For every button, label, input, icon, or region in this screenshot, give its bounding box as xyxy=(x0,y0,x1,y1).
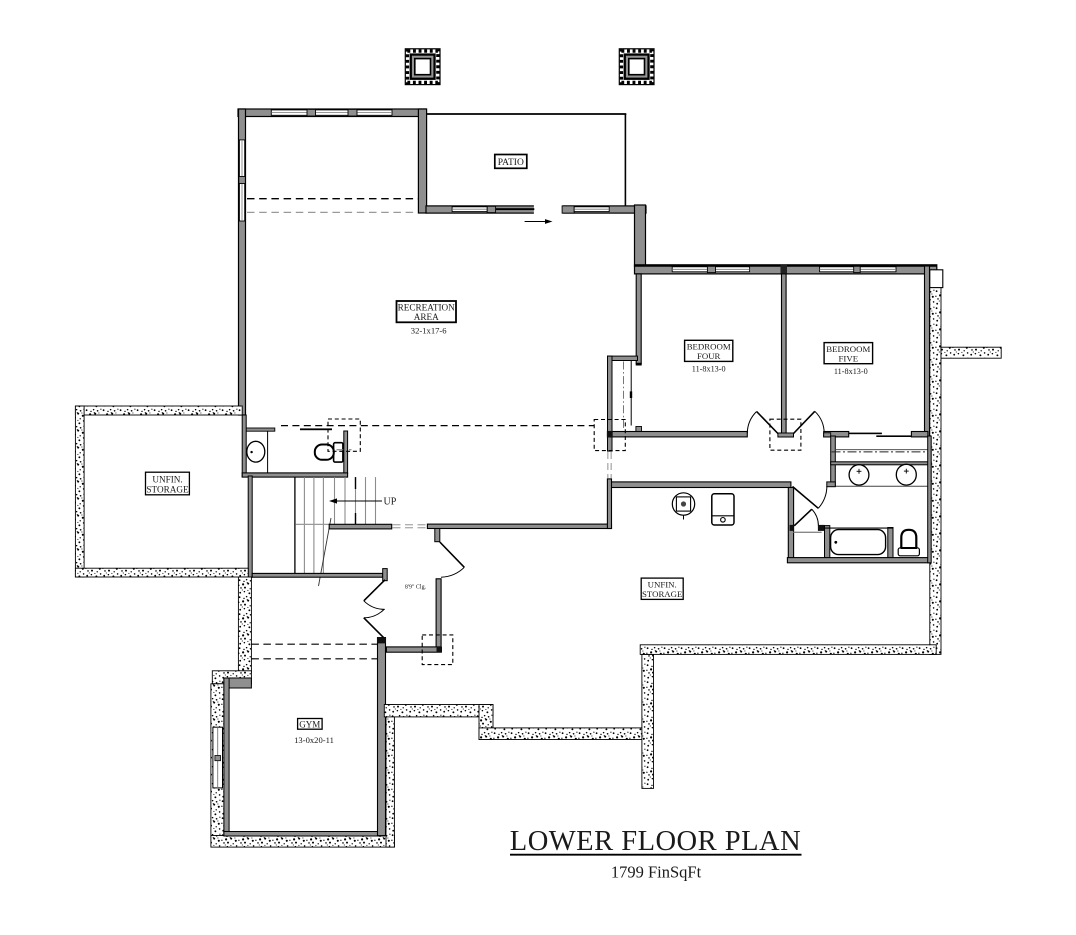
svg-text:RECREATION: RECREATION xyxy=(398,302,456,312)
svg-text:STORAGE: STORAGE xyxy=(146,484,189,494)
svg-text:13-0x20-11: 13-0x20-11 xyxy=(294,735,334,745)
svg-text:GYM: GYM xyxy=(299,719,320,729)
svg-text:UNFIN.: UNFIN. xyxy=(648,580,677,590)
svg-text:11-8x13-0: 11-8x13-0 xyxy=(834,367,868,376)
svg-text:LOWER FLOOR PLAN: LOWER FLOOR PLAN xyxy=(510,826,801,857)
svg-text:11-8x13-0: 11-8x13-0 xyxy=(692,365,726,374)
svg-text:PATIO: PATIO xyxy=(498,158,524,168)
svg-text:32-1x17-6: 32-1x17-6 xyxy=(411,325,448,335)
svg-text:FOUR: FOUR xyxy=(697,351,721,361)
svg-text:UP: UP xyxy=(384,496,397,507)
svg-text:1799 FinSqFt: 1799 FinSqFt xyxy=(611,863,702,882)
svg-text:STORAGE: STORAGE xyxy=(642,589,682,599)
svg-text:8'9" Clg.: 8'9" Clg. xyxy=(405,585,427,591)
svg-text:UNFIN.: UNFIN. xyxy=(152,474,182,484)
svg-text:AREA: AREA xyxy=(414,312,439,322)
svg-text:FIVE: FIVE xyxy=(839,353,859,363)
